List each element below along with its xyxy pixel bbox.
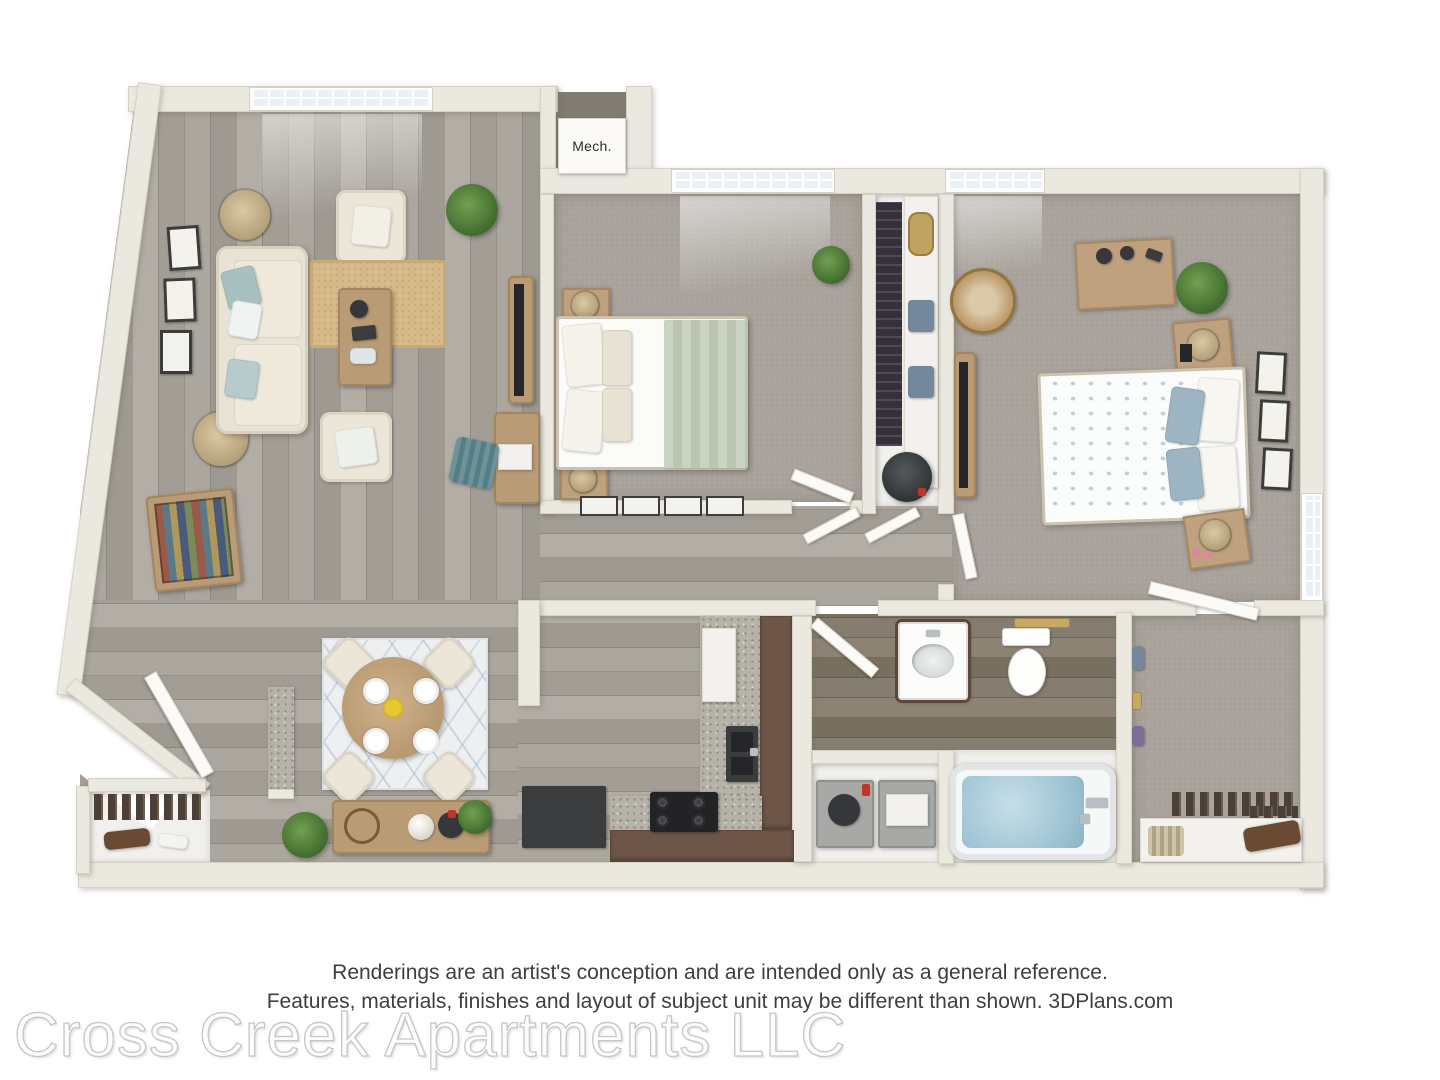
stove-burner-1 xyxy=(656,796,669,809)
tv-living xyxy=(514,284,524,396)
bathtub-water xyxy=(962,776,1084,848)
stove-burner-4 xyxy=(692,814,705,827)
rattan-chair-bed2 xyxy=(950,268,1016,334)
label-mech: Mech. xyxy=(558,126,626,166)
console-sphere xyxy=(408,814,434,840)
knee-wall-granite xyxy=(268,687,294,791)
wall-kitchen-west xyxy=(518,600,540,706)
bathtub-knob xyxy=(1080,814,1090,824)
walkin-hanging-purple xyxy=(1132,726,1144,746)
console-pot-red xyxy=(448,810,456,818)
wall-entry-closet-left xyxy=(76,786,90,874)
bed2-art-3 xyxy=(1261,447,1293,491)
bed1-pillow-3 xyxy=(602,330,632,386)
wall-kitchen-east xyxy=(792,616,812,862)
water-heater-valve xyxy=(918,488,926,496)
knee-wall-base xyxy=(268,789,294,799)
bed2-duvet-floral xyxy=(1046,376,1186,516)
bed1-pillow-1 xyxy=(561,322,607,388)
lamp-bed1-top xyxy=(572,292,598,318)
stove-burner-3 xyxy=(656,814,669,827)
donut-decor-1 xyxy=(1192,548,1202,558)
dining-plate-2 xyxy=(413,678,439,704)
bed1-pillow-2 xyxy=(561,388,607,454)
wall-entry-closet-top xyxy=(88,778,206,792)
floorplan: Mech. xyxy=(0,0,1440,1080)
dining-flowers xyxy=(381,696,405,720)
toilet-tank xyxy=(1002,628,1050,646)
window-bedroom-2 xyxy=(946,170,1044,192)
window-bedroom-1 xyxy=(672,170,834,192)
wall-south-kitchen xyxy=(518,600,816,616)
wall-bedroom1-left xyxy=(540,194,554,514)
bookshelf-books xyxy=(154,496,234,583)
lamp-bed2-top xyxy=(1188,330,1218,360)
wall-south-bath xyxy=(878,600,1196,616)
bed2-art-2 xyxy=(1258,399,1290,443)
dryer-lid xyxy=(886,794,928,826)
walkin-hanging-bag-blue xyxy=(1132,646,1144,670)
art-frame-living-1 xyxy=(167,225,202,271)
closet1-bag-1 xyxy=(908,300,934,332)
wall-south-closet xyxy=(1254,600,1324,616)
bed1-art-4 xyxy=(706,496,744,516)
wall-laundry-top xyxy=(812,750,940,764)
bed1-pillow-4 xyxy=(602,388,632,442)
walkin-basket xyxy=(1148,826,1184,856)
desk-papers xyxy=(498,444,532,470)
art-frame-living-3 xyxy=(160,330,192,374)
bed2-pillow-blue-2 xyxy=(1165,446,1204,501)
console-wheel-decor xyxy=(344,808,380,844)
walkin-sandals xyxy=(1250,806,1298,818)
wall-bedroom2-left xyxy=(938,194,954,514)
wall-exterior-top-right xyxy=(540,168,1324,194)
disclaimer: Renderings are an artist's conception an… xyxy=(0,958,1440,1016)
kitchen-cabinet-bottom xyxy=(610,830,794,862)
plant-bed2 xyxy=(1176,262,1228,314)
sunlight-bedroom-1 xyxy=(680,196,830,306)
bed1-art-2 xyxy=(622,496,660,516)
coffee-table-book xyxy=(350,348,376,364)
art-frame-living-2 xyxy=(163,277,197,322)
bed2-art-1 xyxy=(1255,351,1287,395)
window-bedroom-2-side xyxy=(1302,494,1322,600)
plant-living xyxy=(446,184,498,236)
kitchen-faucet xyxy=(750,748,758,756)
dresser-decor-1 xyxy=(1096,248,1112,264)
phone-bed2 xyxy=(1180,344,1192,362)
dining-plate-4 xyxy=(413,728,439,754)
dresser-decor-2 xyxy=(1120,246,1134,260)
fridge xyxy=(522,786,606,848)
closet1-duffel xyxy=(908,212,934,256)
donut-decor-2 xyxy=(1204,551,1212,559)
armchair-bottom-pillow xyxy=(334,425,379,468)
desk-chair xyxy=(448,436,501,490)
tv-bed2 xyxy=(959,362,968,488)
plant-dining-floor xyxy=(282,812,328,858)
lamp-bed2-bottom xyxy=(1200,520,1230,550)
stove-burner-2 xyxy=(692,796,705,809)
kitchen-cutting-board xyxy=(702,628,736,702)
console-plant xyxy=(458,800,492,834)
bed1-throw-sage xyxy=(664,320,748,468)
coffee-table-bowl xyxy=(350,300,368,318)
window-living xyxy=(250,88,432,110)
closet1-clothes xyxy=(876,202,902,446)
toilet-bowl xyxy=(1008,648,1046,696)
kitchen-sink-basin-2 xyxy=(731,757,753,775)
bath-towel-bar xyxy=(1014,618,1070,628)
bed1-art-1 xyxy=(580,496,618,516)
sofa-pillow-blue-2 xyxy=(224,358,261,400)
floor-lamp-top xyxy=(220,190,270,240)
dining-plate-3 xyxy=(363,728,389,754)
bed1-art-3 xyxy=(664,496,702,516)
closet1-bag-2 xyxy=(908,366,934,398)
disclaimer-line-1: Renderings are an artist's conception an… xyxy=(0,958,1440,987)
wall-closet1-left xyxy=(862,194,876,514)
entry-shoe-shelf xyxy=(94,794,206,820)
plant-bed1 xyxy=(812,246,850,284)
bath-sink-basin xyxy=(912,644,954,678)
sofa-pillow-white xyxy=(227,300,263,341)
wall-bath-walkin xyxy=(1116,612,1132,864)
wall-exterior-bottom xyxy=(78,862,1324,888)
washer-door xyxy=(828,794,860,826)
kitchen-cabinet-right xyxy=(760,616,792,830)
floor-plan-page: Mech. Renderings are an artist's concept… xyxy=(0,0,1440,1080)
disclaimer-line-2: Features, materials, finishes and layout… xyxy=(0,987,1440,1016)
armchair-top-pillow xyxy=(350,204,392,248)
walkin-hanging-tan xyxy=(1132,692,1142,710)
bath-faucet xyxy=(926,630,940,637)
bathtub-faucet xyxy=(1086,798,1108,808)
washer-detergent xyxy=(862,784,870,796)
coffee-table-decor xyxy=(351,325,376,341)
